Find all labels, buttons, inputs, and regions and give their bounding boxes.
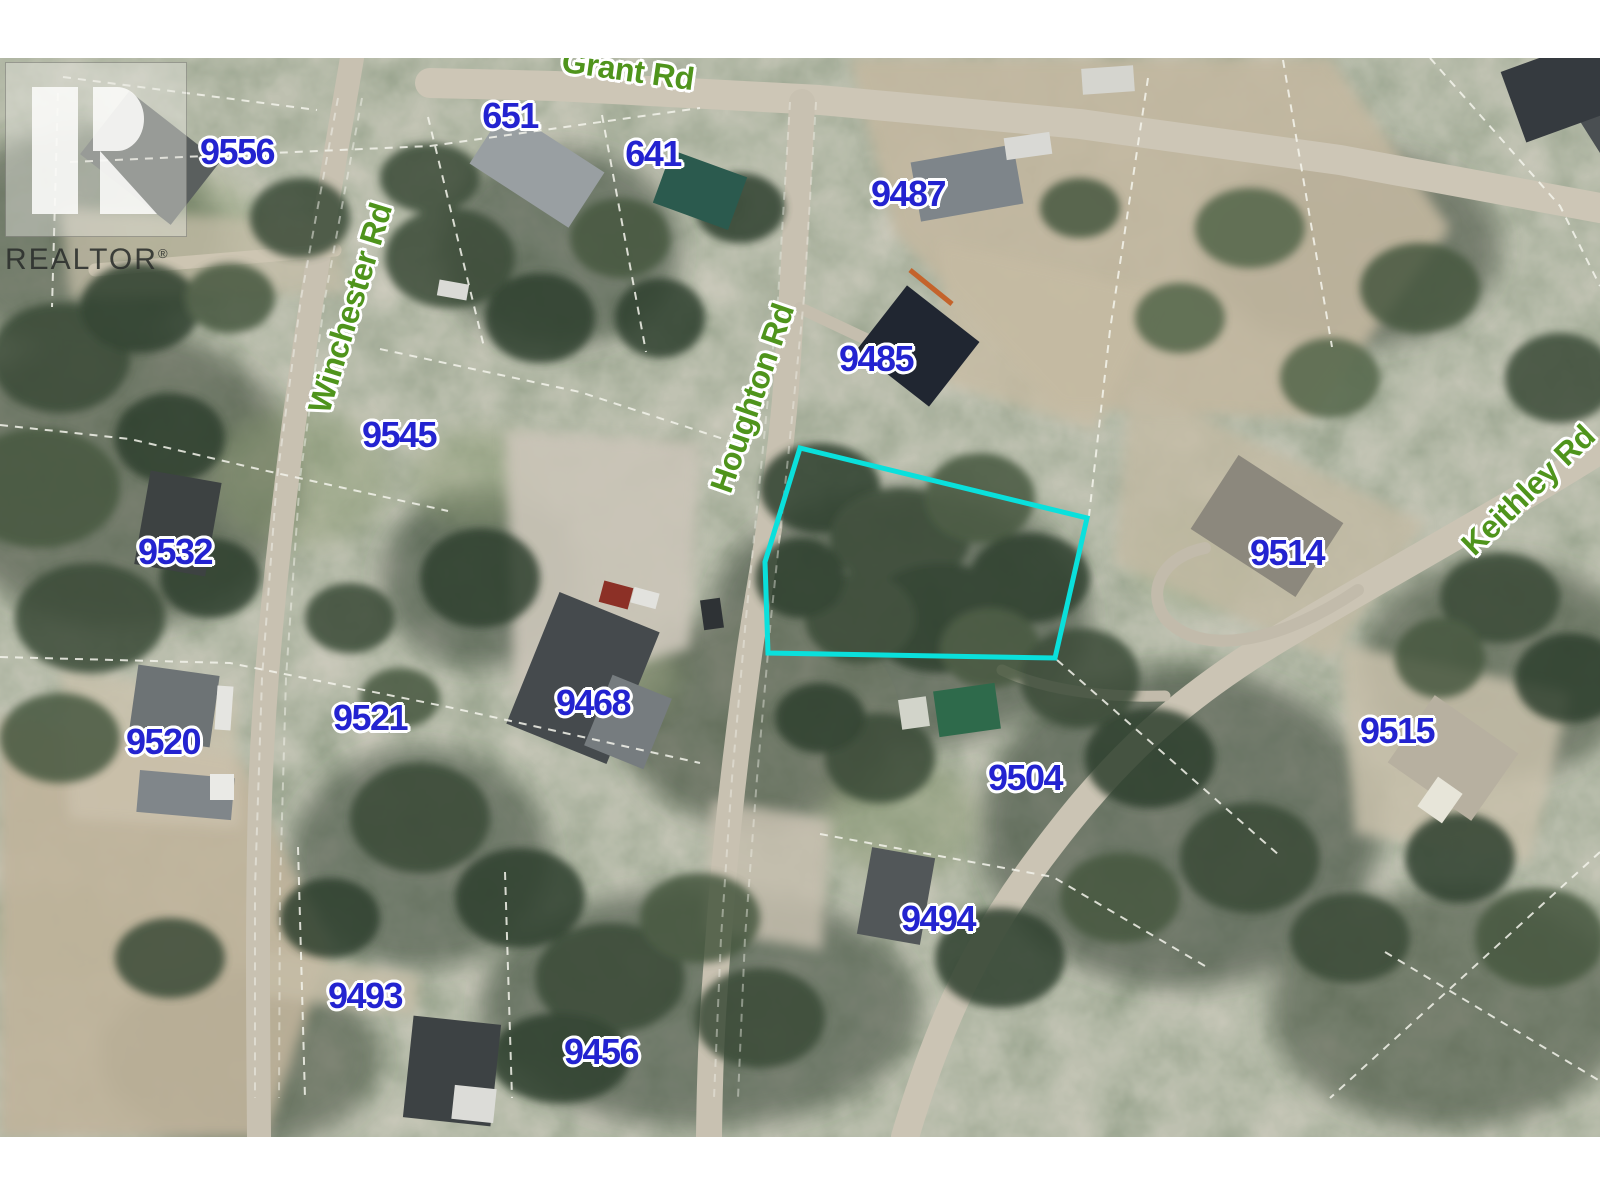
- aerial-map[interactable]: 9556651641948794859545953295219520946895…: [0, 58, 1600, 1137]
- parcel-label-641: 641: [625, 136, 681, 172]
- parcel-label-9493: 9493: [328, 978, 402, 1014]
- parcel-label-9494: 9494: [901, 901, 975, 937]
- listing-map-screenshot: 9556651641948794859545953295219520946895…: [0, 0, 1600, 1200]
- parcel-label-9556: 9556: [200, 134, 274, 170]
- parcel-label-9487: 9487: [871, 176, 945, 212]
- parcel-label-9520: 9520: [126, 724, 200, 760]
- road-label-grant-rd: Grant Rd: [560, 58, 696, 95]
- parcel-label-9485: 9485: [839, 341, 913, 377]
- parcel-label-9521: 9521: [333, 700, 407, 736]
- parcel-label-9545: 9545: [362, 417, 436, 453]
- parcel-label-9456: 9456: [564, 1034, 638, 1070]
- realtor-logo-symbol: [5, 62, 187, 237]
- parcel-label-9515: 9515: [1360, 713, 1434, 749]
- parcel-label-9468: 9468: [556, 685, 630, 721]
- road-label-winchester-rd: Winchester Rd: [303, 199, 397, 416]
- parcel-label-651: 651: [482, 98, 538, 134]
- realtor-logo: REALTOR®: [5, 62, 190, 275]
- parcel-label-9514: 9514: [1250, 535, 1324, 571]
- map-label-layer: 9556651641948794859545953295219520946895…: [0, 58, 1600, 1137]
- road-label-keithley-rd: Keithley Rd: [1456, 419, 1600, 560]
- parcel-label-9504: 9504: [988, 760, 1062, 796]
- realtor-logo-text: REALTOR®: [5, 245, 190, 275]
- road-label-houghton-rd: Houghton Rd: [705, 300, 799, 497]
- parcel-label-9532: 9532: [138, 534, 212, 570]
